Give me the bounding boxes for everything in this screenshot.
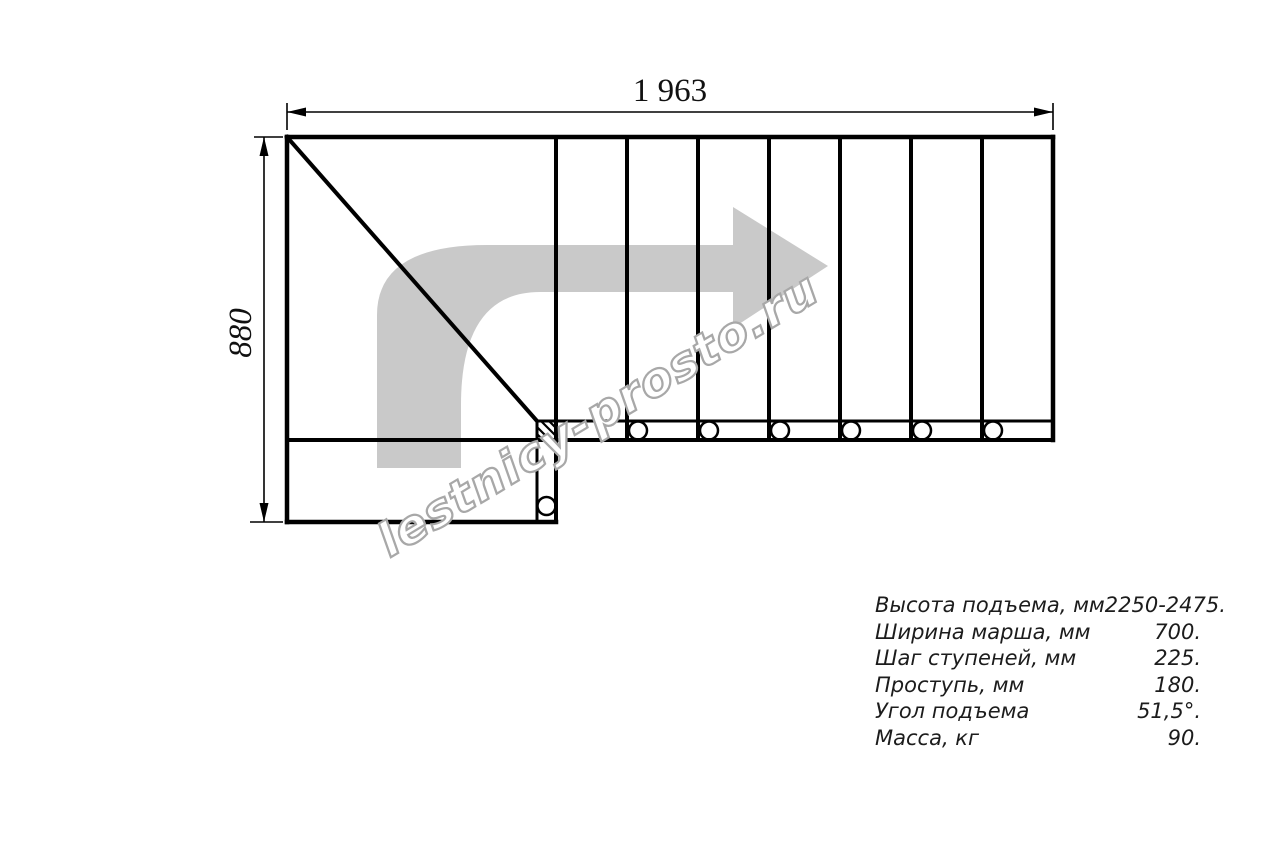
spec-row: Угол подъема 51,5°. <box>875 698 1201 725</box>
spec-value: 51,5°. <box>1137 698 1201 725</box>
fastener-circle <box>700 422 718 440</box>
dimension-arrowhead <box>1034 108 1053 117</box>
spec-label: Угол подъема <box>875 698 1029 725</box>
width-dimension-label: 1 963 <box>633 73 707 109</box>
depth-dimension-label: 880 <box>223 308 259 358</box>
spec-label: Масса, кг <box>875 725 979 752</box>
stair-drawing-page: 1 963 880 lestnicy-prosto.ru Высота подъ… <box>0 0 1280 853</box>
spec-row: Ширина марша, мм 700. <box>875 619 1201 646</box>
depth-dimension: 880 <box>223 137 283 522</box>
spec-label: Ширина марша, мм <box>875 619 1091 646</box>
specs-table: Высота подъема, мм 2250-2475. Ширина мар… <box>875 592 1201 752</box>
width-dimension: 1 963 <box>287 73 1053 130</box>
spec-label: Высота подъема, мм <box>875 592 1105 619</box>
fastener-circle <box>913 422 931 440</box>
spec-value: 700. <box>1154 619 1201 646</box>
spec-value: 90. <box>1168 725 1201 752</box>
fastener-circle <box>538 497 556 515</box>
fastener-circle <box>771 422 789 440</box>
spec-row: Шаг ступеней, мм 225. <box>875 645 1201 672</box>
spec-row: Масса, кг 90. <box>875 725 1201 752</box>
dimension-arrowhead <box>260 503 269 522</box>
spec-row: Проступь, мм 180. <box>875 672 1201 699</box>
spec-value: 2250-2475. <box>1105 592 1226 619</box>
spec-value: 180. <box>1154 672 1201 699</box>
spec-label: Шаг ступеней, мм <box>875 645 1076 672</box>
fastener-circle <box>842 422 860 440</box>
dimension-arrowhead <box>287 108 306 117</box>
spec-label: Проступь, мм <box>875 672 1024 699</box>
spec-value: 225. <box>1154 645 1201 672</box>
spec-row: Высота подъема, мм 2250-2475. <box>875 592 1201 619</box>
dimension-arrowhead <box>260 137 269 156</box>
fastener-circle <box>984 422 1002 440</box>
